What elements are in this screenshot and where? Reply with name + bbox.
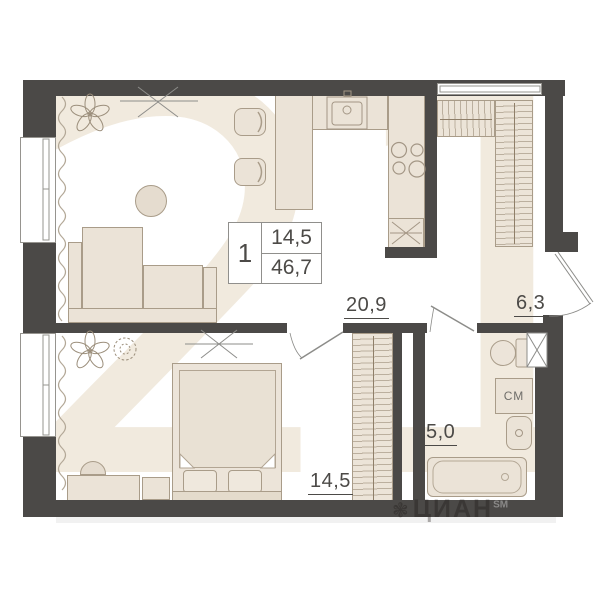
wall-left-top-corner xyxy=(23,80,56,137)
sofa-chaise xyxy=(82,227,143,310)
bedroom-bench xyxy=(67,475,140,502)
door-entrance xyxy=(549,252,593,316)
dining-chair-1 xyxy=(234,108,266,136)
label-living-kitchen: 20,9 xyxy=(344,295,389,319)
label-bedroom: 14,5 xyxy=(308,471,353,495)
bathroom-sink xyxy=(506,416,532,450)
bed-blanket xyxy=(179,370,276,468)
wall-divider-bottom-cap xyxy=(385,247,437,258)
total-area-value: 46,7 xyxy=(262,254,321,284)
bed-pillow-1 xyxy=(183,470,217,493)
rooms-count: 1 xyxy=(229,223,262,283)
wall-bathroom-left xyxy=(413,333,425,500)
wardrobe-hallway-1 xyxy=(437,100,495,137)
sofa-base xyxy=(68,308,217,323)
bedroom-side-table xyxy=(142,477,170,500)
wall-right-lower xyxy=(543,315,563,505)
living-area-value: 14,5 xyxy=(262,223,321,254)
wall-bedroom-right xyxy=(393,333,402,500)
label-hallway: 6,3 xyxy=(514,293,547,317)
washing-machine: СМ xyxy=(495,378,533,414)
apartment-info-box: 1 14,5 46,7 xyxy=(228,222,322,284)
wall-bath-right-nub xyxy=(535,365,545,500)
wall-bathroom-top xyxy=(477,323,563,333)
wardrobe-hallway-2 xyxy=(495,100,533,247)
wall-living-bedroom-right xyxy=(343,323,427,333)
kitchen-island-counter xyxy=(275,95,313,210)
wall-entry-jamb xyxy=(563,232,578,252)
pouf-round xyxy=(135,185,167,217)
sofa-arm-left xyxy=(68,242,82,310)
brand-watermark: ❃ЦИАНSM xyxy=(392,495,508,524)
kitchen-appliance-box xyxy=(388,218,424,248)
brand-sup: SM xyxy=(493,500,508,511)
brand-name: ЦИАН xyxy=(413,495,493,523)
bathtub xyxy=(427,457,527,497)
wardrobe-bedroom xyxy=(352,333,393,503)
floor-plan: 21 СМ xyxy=(0,0,600,600)
label-bathroom: 5,0 xyxy=(424,422,457,446)
dining-chair-2 xyxy=(234,158,266,186)
bed-pillow-2 xyxy=(228,470,262,493)
brand-flower-icon: ❃ xyxy=(392,500,411,522)
wall-kitchen-hall-divider xyxy=(425,96,437,258)
window-hallway xyxy=(437,83,542,95)
wall-left-middle xyxy=(23,243,56,333)
washing-machine-label: СМ xyxy=(504,389,525,403)
wall-living-bedroom-left xyxy=(56,323,287,333)
window-bedroom xyxy=(20,333,56,437)
wall-right-upper xyxy=(545,80,563,252)
window-living xyxy=(20,137,56,243)
